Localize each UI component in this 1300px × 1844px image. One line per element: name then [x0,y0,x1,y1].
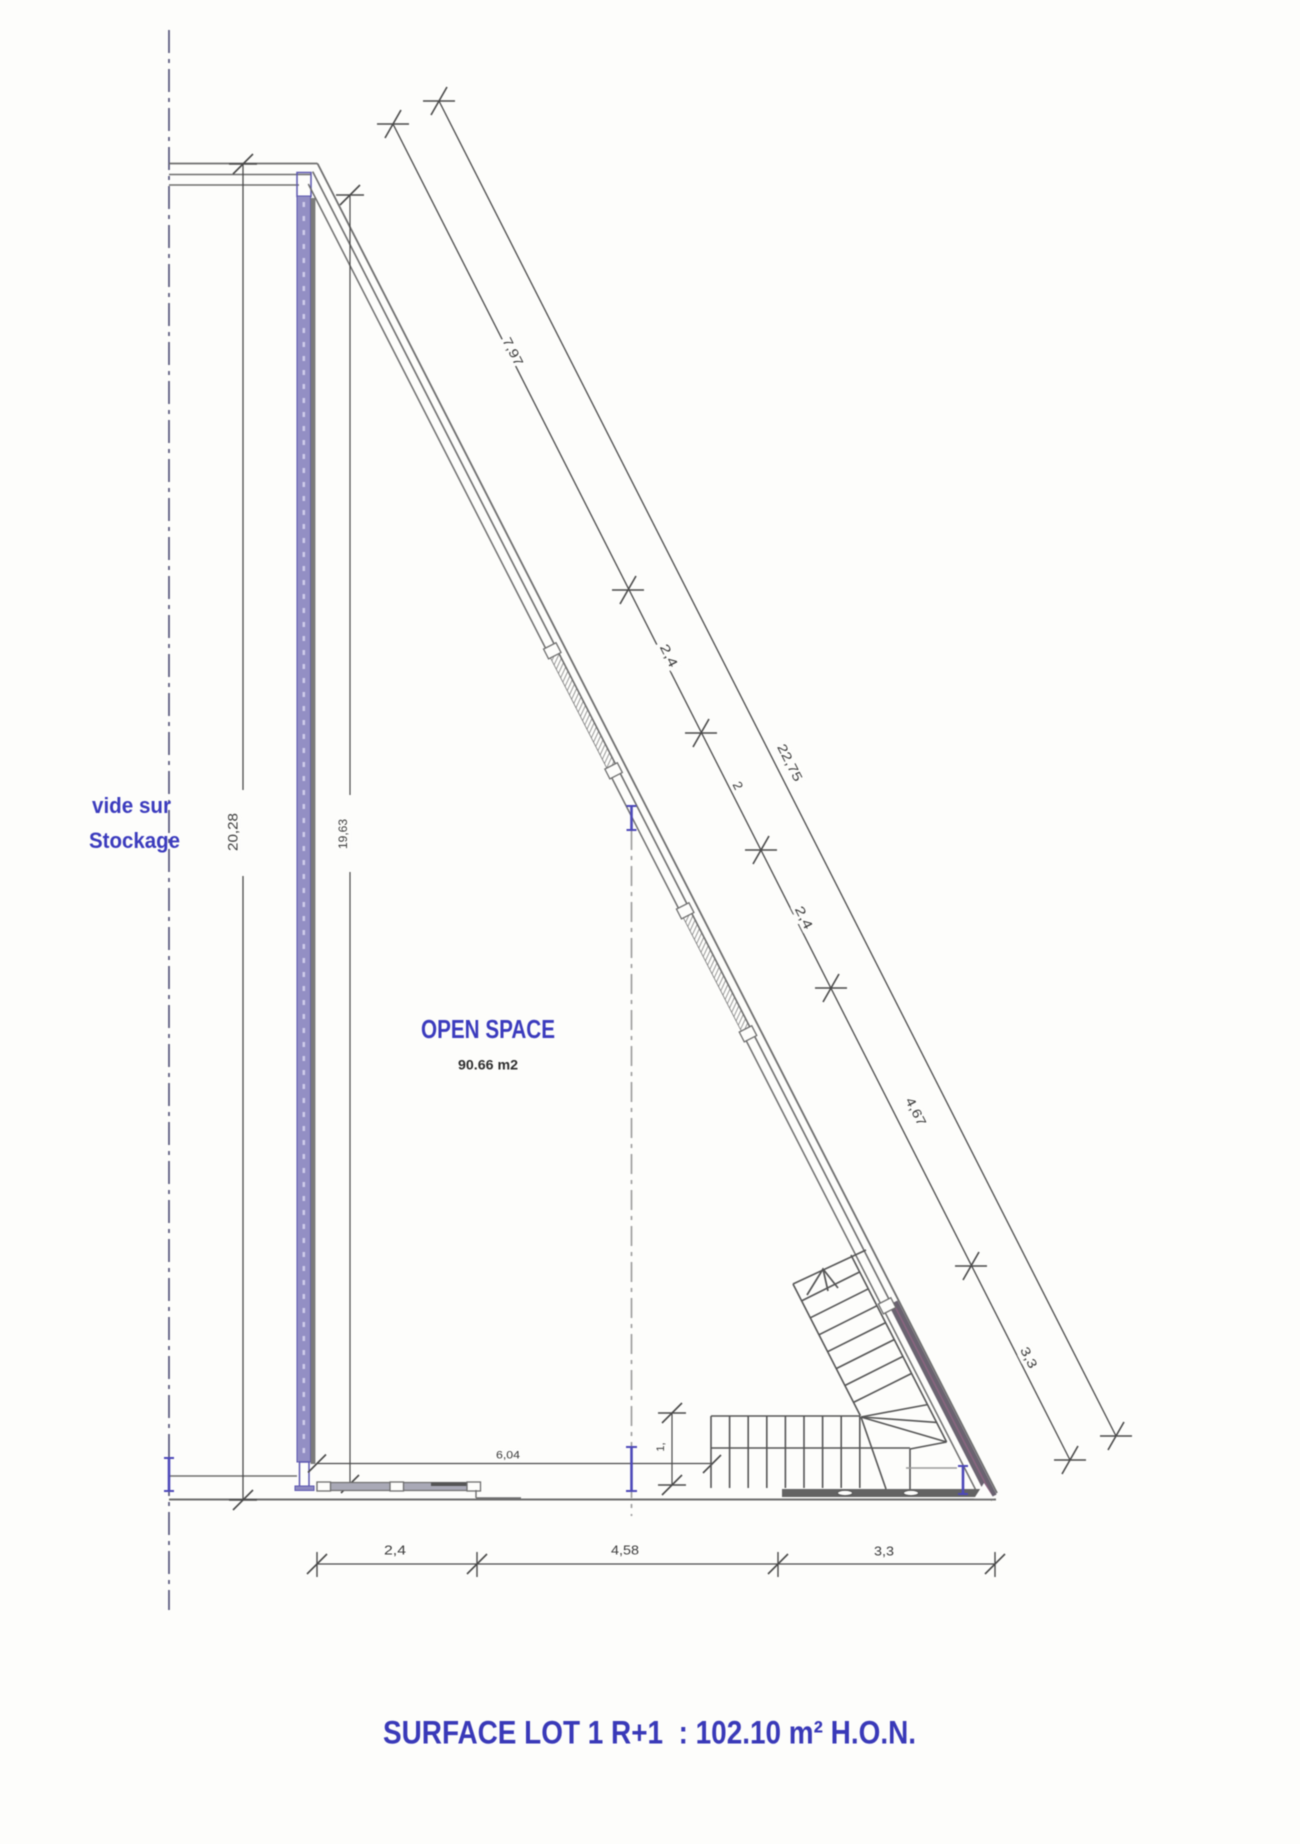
svg-text:2: 2 [730,779,747,792]
svg-text:90.66 m2: 90.66 m2 [458,1057,518,1073]
svg-text:19,63: 19,63 [338,819,350,849]
svg-text:6,04: 6,04 [496,1449,520,1461]
svg-text:22,75: 22,75 [774,741,806,783]
svg-text:7,97: 7,97 [499,335,526,369]
svg-text:vide sur: vide sur [92,793,171,818]
svg-text:2,4: 2,4 [384,1542,406,1557]
svg-text:OPEN SPACE: OPEN SPACE [421,1014,555,1044]
svg-text:20,28: 20,28 [225,813,241,851]
svg-text:SURFACE LOT 1 R+1 : 102.10 m²: SURFACE LOT 1 R+1 : 102.10 m² H.O.N. [383,1714,916,1750]
svg-text:3,3: 3,3 [1017,1344,1040,1370]
svg-text:4,67: 4,67 [902,1095,929,1129]
svg-text:2,4: 2,4 [657,641,681,669]
svg-text:3,3: 3,3 [874,1543,894,1558]
svg-text:Stockage: Stockage [89,828,180,853]
svg-text:1,: 1, [655,1442,667,1451]
svg-text:4,58: 4,58 [611,1542,639,1557]
